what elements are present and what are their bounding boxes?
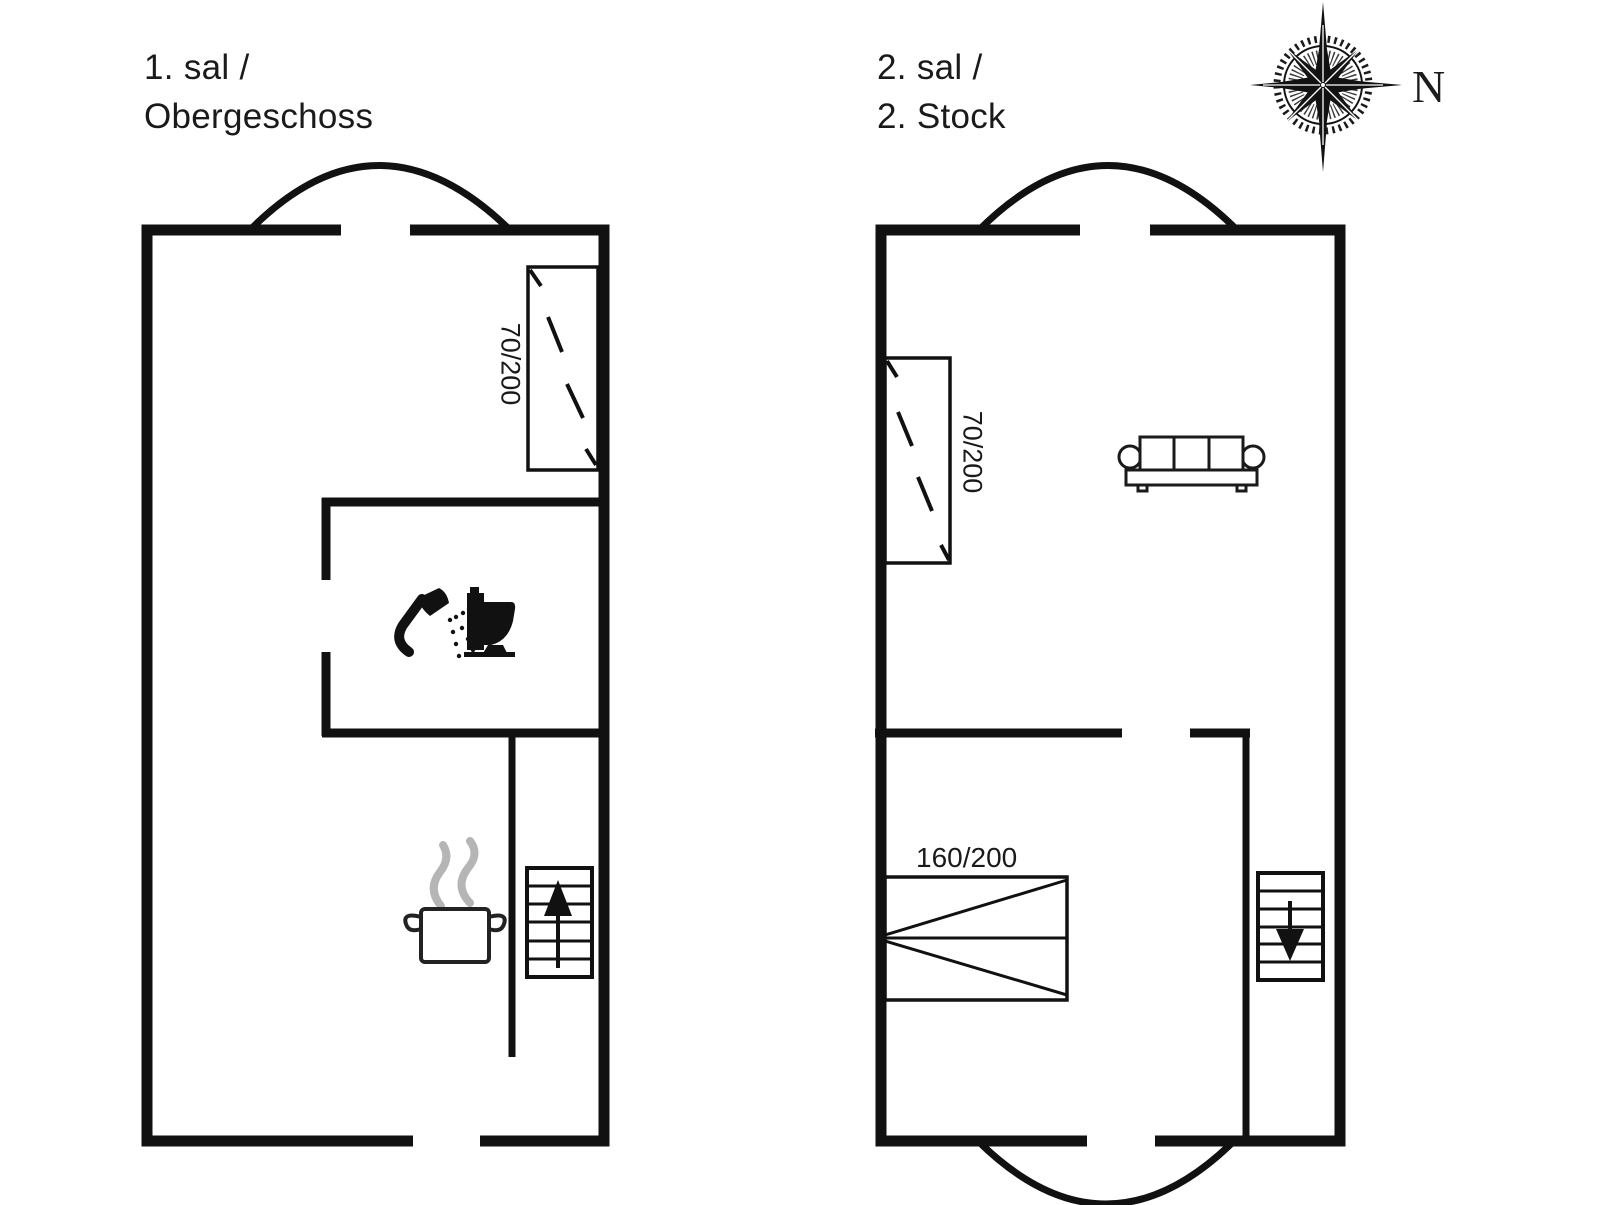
entrance-arch-icon: [249, 166, 511, 232]
floor-right-title-line2: 2. Stock: [877, 97, 1006, 137]
floor-plan-page: 1. sal / Obergeschoss 2. sal / 2. Stock …: [0, 0, 1606, 1205]
toilet-icon: [464, 587, 515, 657]
floor-plan-right: [875, 166, 1340, 1205]
compass-north-label: N: [1412, 60, 1445, 113]
entrance-arch-icon: [978, 166, 1238, 232]
stairs-up-icon: [527, 868, 592, 977]
double-bed-icon: [885, 877, 1067, 1000]
bed-size-label: 70/200: [957, 411, 988, 494]
steam-wisp: [461, 841, 474, 903]
compass-rose-icon: [1250, 2, 1402, 172]
floor-left-title-line1: 1. sal /: [144, 48, 250, 88]
bathroom-walls: [322, 498, 609, 736]
bed-size-label: 160/200: [916, 842, 1017, 874]
floor-plan-drawing: [0, 0, 1606, 1205]
floor-left-title-line2: Obergeschoss: [144, 97, 373, 137]
single-bed-icon: [528, 267, 598, 470]
cooking-pot-icon: [405, 841, 504, 962]
floor-plan-left: [147, 166, 609, 1142]
entrance-arch-icon: [977, 1140, 1235, 1204]
single-bed-icon: [885, 358, 950, 563]
sofa-icon: [1119, 437, 1264, 491]
bed-size-label: 70/200: [495, 323, 526, 406]
floor-right-title-line1: 2. sal /: [877, 48, 983, 88]
stairs-down-icon: [1258, 873, 1323, 980]
steam-wisp: [434, 845, 447, 906]
